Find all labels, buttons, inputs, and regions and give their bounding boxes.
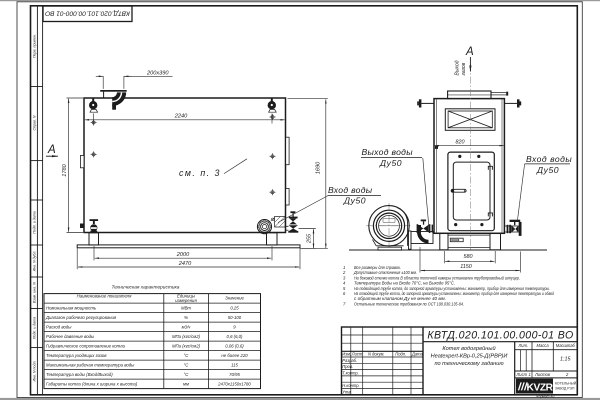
svg-text:Температура воды (Вход/Выход): Температура воды (Вход/Выход)	[46, 372, 113, 377]
svg-text:Габариты котла (длина х ширина: Габариты котла (длина х ширина х высота)	[46, 382, 138, 387]
svg-text:0,6 (6,0): 0,6 (6,0)	[226, 334, 243, 339]
svg-text:Лист: Лист	[351, 352, 363, 357]
svg-text:Значение: Значение	[225, 296, 244, 301]
svg-text:255: 255	[307, 233, 313, 244]
svg-text:МПа (кгс/см2): МПа (кгс/см2)	[172, 334, 201, 339]
svg-text:50-100: 50-100	[228, 315, 242, 320]
svg-text:1: 1	[529, 372, 531, 377]
svg-text:Наименование показателя: Наименование показателя	[77, 294, 133, 299]
svg-text:Техническая характеристика: Техническая характеристика	[112, 284, 180, 290]
svg-text:2470: 2470	[178, 261, 192, 267]
svg-text:Расход воды: Расход воды	[46, 325, 72, 330]
svg-text:Выход: Выход	[454, 60, 460, 75]
svg-text:Формат А3: Формат А3	[536, 394, 555, 398]
svg-text:Ду50: Ду50	[536, 165, 559, 175]
svg-text:Гидравлическое сопротивление к: Гидравлическое сопротивление котла	[46, 344, 126, 349]
svg-text:115: 115	[231, 363, 238, 368]
svg-text:КВТД.020.101.00.000-01 ВО: КВТД.020.101.00.000-01 ВО	[45, 10, 130, 17]
svg-text:Инв. N подл.: Инв. N подл.	[32, 360, 36, 381]
svg-text:КВТД.020.101.00.000-01 ВО: КВТД.020.101.00.000-01 ВО	[427, 329, 573, 341]
svg-text:KVZR: KVZR	[527, 383, 554, 394]
svg-text:Лист: Лист	[516, 372, 528, 377]
svg-text:МПа (кгс/см2): МПа (кгс/см2)	[172, 344, 201, 349]
svg-text:Лит.: Лит.	[518, 343, 529, 348]
svg-text:2470х1150х1780: 2470х1150х1780	[217, 382, 251, 387]
svg-text:Листов: Листов	[534, 372, 551, 377]
svg-text:1690: 1690	[316, 161, 322, 174]
svg-text:Номинальная мощность: Номинальная мощность	[46, 306, 97, 311]
svg-text:Диапазон рабочего регулировани: Диапазон рабочего регулирования	[45, 315, 117, 320]
svg-text:Т.контр.: Т.контр.	[342, 371, 359, 376]
svg-text:Перв. примен.: Перв. примен.	[32, 34, 36, 58]
svg-text:Подп.: Подп.	[395, 352, 406, 357]
svg-text:мм: мм	[183, 382, 189, 387]
svg-text:Н.контр.: Н.контр.	[342, 383, 359, 388]
svg-text:Изм.: Изм.	[342, 352, 351, 357]
svg-text:820: 820	[456, 140, 465, 146]
svg-text:Пров.: Пров.	[342, 364, 353, 369]
svg-text:Инв. N дубл.: Инв. N дубл.	[32, 251, 36, 272]
svg-text:Остальные технические требован: Остальные технические требования по ОСТ …	[354, 301, 464, 306]
svg-text:Вход воды: Вход воды	[526, 154, 572, 164]
svg-text:м3/ч: м3/ч	[182, 325, 192, 330]
svg-text:Рабочее давление воды: Рабочее давление воды	[46, 334, 95, 339]
svg-text:измерения: измерения	[175, 298, 197, 303]
svg-text:Котел водогрейный: Котел водогрейный	[442, 345, 495, 352]
svg-text:см. п. 3: см. п. 3	[179, 168, 221, 178]
svg-text:Температура уходящих газов: Температура уходящих газов	[46, 353, 107, 358]
svg-text:0,25: 0,25	[230, 306, 239, 311]
svg-text:Максимальная рабочая температу: Максимальная рабочая температура воды	[46, 363, 135, 368]
svg-text:200х390: 200х390	[146, 70, 169, 76]
svg-text:МВт: МВт	[181, 306, 191, 311]
svg-text:Разраб.: Разраб.	[342, 358, 357, 363]
svg-text:2000: 2000	[176, 252, 190, 258]
svg-text:1150: 1150	[460, 264, 472, 270]
svg-text:Утв.: Утв.	[342, 389, 351, 394]
svg-text:А: А	[47, 144, 56, 156]
svg-text:0,06 (0,6): 0,06 (0,6)	[225, 344, 244, 349]
svg-text:газов: газов	[461, 62, 467, 75]
svg-text:1780: 1780	[62, 163, 68, 176]
svg-text:%: %	[184, 315, 188, 320]
svg-text:Ду50: Ду50	[343, 196, 366, 206]
svg-text:Дата: Дата	[411, 352, 424, 357]
svg-text:N докум.: N докум.	[368, 352, 385, 357]
svg-text:Взам. инв. N: Взам. инв. N	[32, 282, 36, 303]
svg-text:ЗАВОД РЭП: ЗАВОД РЭП	[555, 387, 575, 391]
svg-text:580: 580	[464, 254, 473, 260]
svg-text:Ду50: Ду50	[379, 158, 402, 168]
svg-text:по техническому заданию: по техническому заданию	[434, 361, 504, 367]
svg-text:не более 220: не более 220	[221, 353, 248, 358]
svg-text:1:15: 1:15	[560, 357, 571, 363]
svg-text:Масштаб: Масштаб	[556, 343, 576, 348]
svg-text:Подп. и дата: Подп. и дата	[32, 317, 36, 340]
svg-text:70/95: 70/95	[229, 372, 240, 377]
svg-text:2240: 2240	[174, 114, 188, 120]
svg-text:Вход воды: Вход воды	[328, 185, 373, 195]
svg-text:Выход воды: Выход воды	[362, 147, 414, 157]
svg-text:Heatexpert-КВр-0,25-Д(РВР)И: Heatexpert-КВр-0,25-Д(РВР)И	[431, 353, 508, 359]
svg-text:Подп. и дата: Подп. и дата	[32, 211, 36, 234]
svg-text:Справ. N: Справ. N	[32, 115, 36, 130]
svg-text:А: А	[465, 46, 474, 58]
svg-text:Масса: Масса	[537, 343, 550, 348]
svg-text:КОТЕЛЬНЫЙ: КОТЕЛЬНЫЙ	[555, 382, 577, 386]
